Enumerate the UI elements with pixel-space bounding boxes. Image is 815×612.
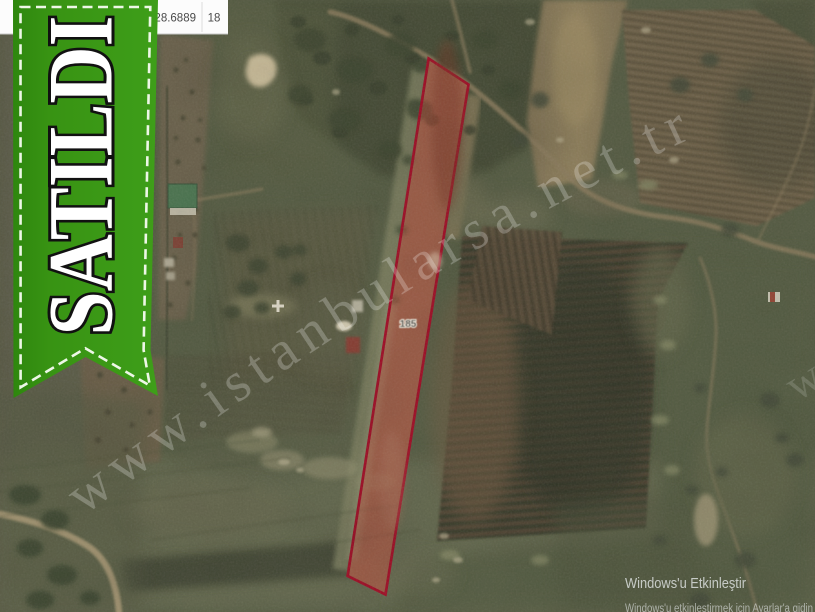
svg-text:18: 18	[208, 13, 221, 25]
svg-text:Windows'u Etkinleştir: Windows'u Etkinleştir	[625, 575, 746, 592]
svg-text:Windows'u etkinleştirmek için: Windows'u etkinleştirmek için Ayarlar'a …	[625, 603, 813, 612]
svg-text:SATILDI: SATILDI	[30, 16, 132, 336]
